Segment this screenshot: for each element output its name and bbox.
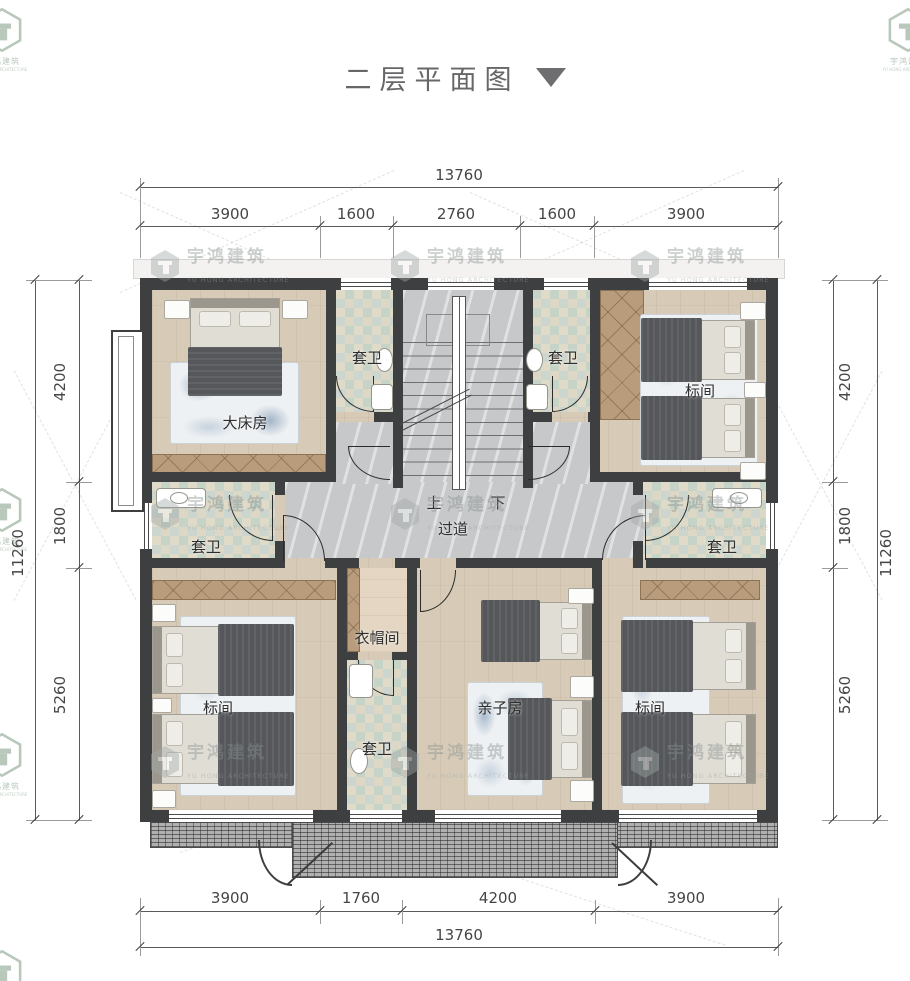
pillow xyxy=(561,608,578,629)
headboard xyxy=(746,715,755,783)
headboard xyxy=(745,399,754,457)
edge-logo: 宇鸿建筑 YU HONG ARCHITECTURE xyxy=(0,950,30,981)
nightstand xyxy=(568,588,594,604)
wall xyxy=(766,290,778,810)
dim-bottom-seg-2: 1760 xyxy=(321,889,401,907)
room-label-bath-bc: 套卫 xyxy=(346,738,408,759)
hexagon-logo-icon xyxy=(0,8,22,52)
headboard xyxy=(153,715,162,783)
nightstand xyxy=(152,604,176,622)
dim-left-seg-1: 4200 xyxy=(51,352,69,412)
extension-line xyxy=(140,898,141,956)
single-bed xyxy=(643,320,755,380)
dim-right-seg-1: 4200 xyxy=(836,352,854,412)
hexagon-logo-icon xyxy=(0,733,22,777)
dim-line-top-total xyxy=(140,187,778,188)
pillow xyxy=(239,311,271,327)
wall xyxy=(633,482,643,495)
extension-line xyxy=(822,568,848,569)
single-bed xyxy=(152,714,292,784)
pillow xyxy=(561,708,578,736)
headboard xyxy=(153,627,162,693)
pillow xyxy=(166,721,183,746)
dim-line-bottom-total xyxy=(140,947,778,948)
pillow xyxy=(725,752,742,777)
dim-line-left-segments xyxy=(79,280,80,820)
wall xyxy=(393,290,403,488)
dim-line-top-segments xyxy=(140,226,778,227)
single-bed xyxy=(623,714,756,784)
nightstand xyxy=(570,780,594,802)
pillow xyxy=(725,659,742,683)
pillow xyxy=(724,352,741,374)
nightstand xyxy=(744,382,766,398)
window xyxy=(434,810,562,822)
dim-left-seg-2: 1800 xyxy=(51,496,69,556)
dim-top-seg-5: 3900 xyxy=(646,205,726,223)
floor-plan-page: 二层平面图 13760 3900 1600 2760 1600 3900 390… xyxy=(0,0,910,981)
pillow xyxy=(724,404,741,426)
window xyxy=(340,278,392,290)
pillow xyxy=(166,752,183,777)
pillow xyxy=(725,721,742,746)
window xyxy=(427,278,495,290)
porch-roof xyxy=(292,822,618,878)
wardrobe xyxy=(152,580,336,600)
wall xyxy=(140,558,283,568)
hexagon-logo-icon xyxy=(0,950,22,981)
wall xyxy=(456,558,602,568)
single-bed xyxy=(643,398,755,458)
pillow xyxy=(725,629,742,653)
wardrobe xyxy=(640,580,760,600)
sink xyxy=(371,384,393,410)
eave-curve-left xyxy=(258,840,292,886)
wall xyxy=(275,482,285,495)
nightstand xyxy=(740,302,766,320)
single-bed xyxy=(623,622,756,690)
floor-plan: 大床房 套卫 套卫 标间 套卫 套卫 过道 上 下 标间 衣帽间 套卫 亲子房 … xyxy=(140,278,778,822)
pillow xyxy=(724,326,741,348)
nightstand xyxy=(570,676,594,698)
window xyxy=(349,810,403,822)
nightstand xyxy=(282,300,308,319)
dim-right-seg-2: 1800 xyxy=(836,496,854,556)
room-label-bath-mr: 套卫 xyxy=(691,536,753,557)
extension-line xyxy=(402,900,403,924)
drawing-title-row: 二层平面图 xyxy=(0,58,910,97)
pillow xyxy=(561,742,578,770)
single-bed xyxy=(152,626,292,694)
stair-up-label: 上 xyxy=(422,492,446,513)
sink-basin xyxy=(170,492,188,504)
dim-bottom-seg-3: 4200 xyxy=(458,889,538,907)
extension-line xyxy=(778,178,779,258)
dim-bottom-total: 13760 xyxy=(359,926,559,944)
edge-logo: 宇鸿建筑 YU HONG ARCHITECTURE xyxy=(0,733,30,797)
dim-top-seg-1: 3900 xyxy=(190,205,270,223)
blanket xyxy=(621,620,693,692)
room-label-master: 大床房 xyxy=(200,412,290,433)
room-label-standard-bl: 标间 xyxy=(186,697,250,718)
dim-top-seg-2: 1600 xyxy=(316,205,396,223)
window xyxy=(766,502,778,550)
nightstand xyxy=(740,462,766,480)
pillow xyxy=(561,633,578,654)
wall xyxy=(395,558,420,568)
wall xyxy=(392,652,407,660)
extension-line xyxy=(140,178,141,258)
blanket xyxy=(621,712,693,786)
window xyxy=(543,278,589,290)
sink xyxy=(349,664,373,698)
dim-line-right-segments xyxy=(833,280,834,820)
extension-line xyxy=(26,820,92,821)
blanket xyxy=(218,624,294,696)
headboard xyxy=(746,623,755,689)
blanket xyxy=(641,318,702,382)
wall xyxy=(407,568,417,810)
wall xyxy=(588,412,600,422)
window xyxy=(648,278,748,290)
sink xyxy=(526,384,548,410)
dim-left-total: 11260 xyxy=(9,513,27,593)
sink-basin xyxy=(730,492,748,504)
blanket xyxy=(481,600,540,662)
headboard xyxy=(745,321,754,379)
single-bed xyxy=(483,602,592,660)
dim-bottom-seg-4: 3900 xyxy=(646,889,726,907)
wall xyxy=(347,652,358,660)
pillow xyxy=(724,430,741,452)
top-eave-band xyxy=(133,259,785,279)
pillow xyxy=(199,311,231,327)
pillow xyxy=(166,633,183,657)
room-label-standard-tr: 标间 xyxy=(668,380,732,401)
blanket xyxy=(641,396,702,460)
dim-top-total: 13760 xyxy=(359,166,559,184)
room-label-cloakroom: 衣帽间 xyxy=(340,627,414,648)
headboard xyxy=(582,603,591,659)
wall xyxy=(325,558,359,568)
room-label-bath-tl: 套卫 xyxy=(336,347,398,368)
hexagon-logo-icon xyxy=(888,8,910,52)
wall xyxy=(646,558,778,568)
window xyxy=(168,810,314,822)
headboard xyxy=(191,299,279,308)
dim-right-seg-3: 5260 xyxy=(836,665,854,725)
room-label-family: 亲子房 xyxy=(468,697,532,718)
page-title: 二层平面图 xyxy=(345,58,520,97)
extension-line xyxy=(595,900,596,924)
headboard xyxy=(582,701,591,777)
wall xyxy=(590,290,600,482)
blanket xyxy=(188,347,282,396)
extension-line xyxy=(822,482,848,483)
wall xyxy=(326,412,336,422)
dim-right-total: 11260 xyxy=(877,513,895,593)
dim-left-seg-3: 5260 xyxy=(51,665,69,725)
dim-line-left-total xyxy=(35,280,36,820)
stair-down-label: 下 xyxy=(486,492,510,513)
wall xyxy=(523,412,552,422)
room-label-bath-tr: 套卫 xyxy=(532,347,594,368)
nightstand xyxy=(164,300,190,319)
dim-line-bottom-segments xyxy=(140,911,778,912)
wall xyxy=(326,290,336,482)
extension-line xyxy=(778,898,779,956)
bay-window xyxy=(111,330,144,512)
dim-top-seg-3: 2760 xyxy=(416,205,496,223)
edge-logo-cn: 宇鸿建筑 xyxy=(0,781,30,792)
nightstand xyxy=(152,698,172,713)
double-bed xyxy=(190,298,280,394)
extension-line xyxy=(26,280,92,281)
blanket xyxy=(218,712,294,786)
dim-top-seg-4: 1600 xyxy=(517,205,597,223)
wardrobe xyxy=(152,454,326,473)
triangle-down-icon xyxy=(536,68,566,87)
nightstand xyxy=(152,790,176,808)
dim-bottom-seg-1: 3900 xyxy=(190,889,270,907)
wall xyxy=(337,568,347,810)
room-label-bath-ml: 套卫 xyxy=(175,536,237,557)
wall xyxy=(374,412,403,422)
wall xyxy=(140,472,336,482)
room-label-standard-br: 标间 xyxy=(618,697,682,718)
edge-logo-en: YU HONG ARCHITECTURE xyxy=(0,792,30,797)
wardrobe xyxy=(600,290,644,420)
window xyxy=(618,810,758,822)
room-label-corridor: 过道 xyxy=(433,518,473,539)
pillow xyxy=(166,663,183,687)
